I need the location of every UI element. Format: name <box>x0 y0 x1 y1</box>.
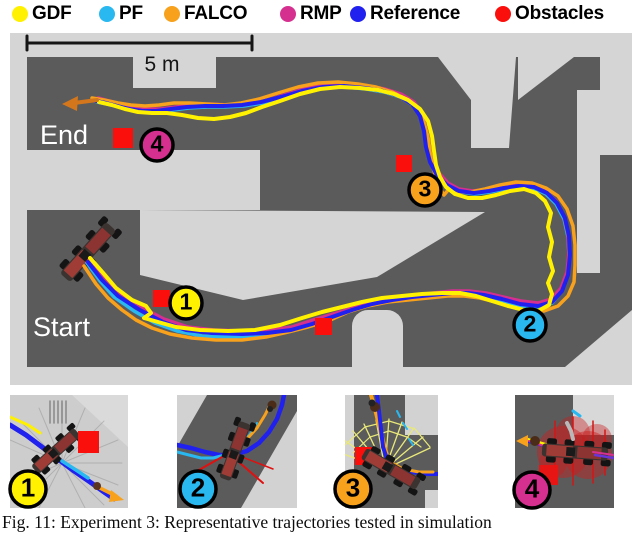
caption-text: Experiment 3: Representative trajectorie… <box>56 512 492 532</box>
svg-text:End: End <box>40 120 88 150</box>
figure-canvas: 5 mEndStart12341234 <box>0 0 640 539</box>
numbered-marker-2: 2 <box>180 471 216 507</box>
numbered-marker-4: 4 <box>141 129 173 161</box>
svg-text:2: 2 <box>524 311 537 337</box>
svg-text:4: 4 <box>151 131 164 157</box>
numbered-marker-3: 3 <box>409 174 441 206</box>
svg-text:Start: Start <box>33 312 91 342</box>
svg-text:3: 3 <box>346 473 361 503</box>
svg-text:2: 2 <box>191 473 206 503</box>
figure-page: GDF PF FALCO RMP Reference Obstacles 5 m… <box>0 0 640 539</box>
svg-text:5 m: 5 m <box>144 53 179 76</box>
svg-text:1: 1 <box>21 473 36 503</box>
simulation-map: 5 mEndStart1234 <box>10 33 632 385</box>
figure-caption: Fig. 11: Experiment 3: Representative tr… <box>2 512 638 533</box>
numbered-marker-3: 3 <box>335 471 371 507</box>
caption-prefix: Fig. 11: <box>2 512 56 532</box>
svg-text:4: 4 <box>525 474 540 504</box>
numbered-marker-1: 1 <box>10 471 46 507</box>
numbered-marker-4: 4 <box>514 472 550 508</box>
svg-text:1: 1 <box>180 289 193 315</box>
numbered-marker-2: 2 <box>514 309 546 341</box>
svg-text:3: 3 <box>419 176 432 202</box>
numbered-marker-1: 1 <box>170 287 202 319</box>
